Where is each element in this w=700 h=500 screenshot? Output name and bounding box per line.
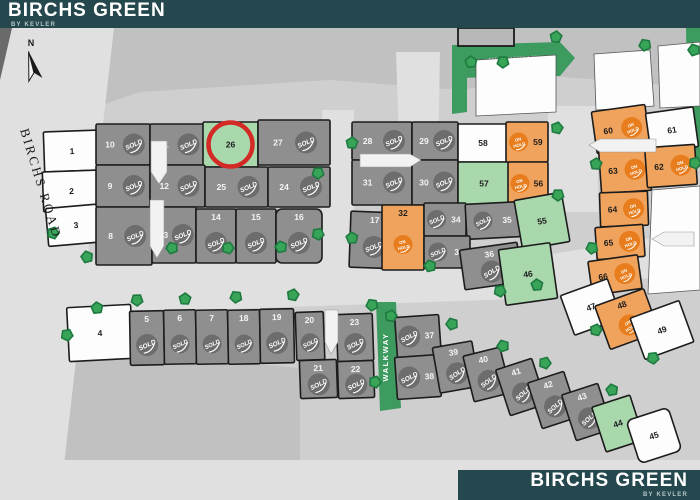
header-title: BIRCHS GREEN	[0, 1, 700, 22]
lot-8[interactable]: 8SOLD	[96, 207, 152, 265]
north-label: N	[28, 38, 35, 48]
lot-number-10: 10	[105, 140, 115, 150]
lot-6[interactable]: 6SOLD	[164, 310, 197, 365]
lot-29[interactable]: 29SOLD	[412, 122, 459, 160]
lot-number-4: 4	[97, 328, 103, 338]
lot-number-17: 17	[370, 215, 380, 225]
lot-number-56: 56	[534, 179, 544, 189]
lot-number-32: 32	[398, 208, 408, 218]
lot-25[interactable]: 25SOLD	[205, 167, 268, 207]
lot-number-57: 57	[479, 179, 489, 189]
lot-number-61: 61	[667, 124, 678, 135]
walkway-label: WALKWAY	[381, 333, 390, 382]
lot-number-65: 65	[603, 237, 613, 248]
footer-bar: BIRCHS GREEN BY KEVLER	[458, 470, 700, 500]
lot-number-20: 20	[305, 315, 315, 325]
lot-number-35: 35	[502, 215, 512, 225]
lot-number-63: 63	[608, 166, 618, 177]
lot-19[interactable]: 19SOLD	[260, 309, 295, 364]
lot-number-19: 19	[272, 312, 282, 322]
lot-57[interactable]: 57	[458, 162, 510, 205]
parcel	[594, 50, 654, 110]
lot-23[interactable]: 23SOLD	[336, 313, 374, 361]
site-map-page: WALKWAYWALKWAY123410SOLD11SOLD2627SOLD9S…	[0, 0, 700, 500]
lot-number-7: 7	[209, 313, 214, 323]
lot-number-36: 36	[484, 248, 495, 259]
lot-number-55: 55	[536, 215, 547, 227]
lot-number-39: 39	[448, 346, 459, 358]
lot-number-59: 59	[533, 137, 543, 147]
site-map-canvas: WALKWAYWALKWAY123410SOLD11SOLD2627SOLD9S…	[0, 0, 700, 500]
road-arrow	[360, 154, 421, 167]
road-arrow	[589, 139, 656, 152]
lot-number-64: 64	[608, 204, 618, 214]
lot-number-22: 22	[351, 364, 361, 374]
lot-1[interactable]: 1	[43, 130, 100, 172]
lot-26[interactable]: 26	[203, 122, 258, 167]
lot-number-37: 37	[424, 330, 434, 341]
lot-30[interactable]: 30SOLD	[412, 160, 459, 205]
lot-number-26: 26	[226, 140, 236, 150]
lot-number-2: 2	[69, 186, 74, 196]
footer-title: BIRCHS GREEN	[458, 471, 688, 492]
lot-number-30: 30	[419, 178, 429, 188]
lot-number-6: 6	[177, 313, 182, 323]
lot-59[interactable]: 59ONHOLD	[506, 122, 548, 162]
lot-34[interactable]: 34SOLD	[424, 203, 466, 236]
lot-number-27: 27	[273, 138, 283, 148]
lot-64[interactable]: 64ONHOLD	[599, 191, 648, 227]
lot-27[interactable]: 27SOLD	[258, 120, 330, 165]
header-subtitle: BY KEVLER	[0, 22, 700, 28]
lot-number-5: 5	[144, 314, 149, 324]
lot-shape-27	[258, 120, 330, 165]
lot-number-25: 25	[217, 182, 227, 192]
lot-number-12: 12	[160, 181, 170, 191]
walkway	[452, 45, 467, 114]
lot-number-58: 58	[478, 138, 488, 148]
lot-number-60: 60	[603, 125, 614, 136]
lot-number-18: 18	[239, 313, 249, 323]
header-bar: BIRCHS GREEN BY KEVLER	[0, 0, 700, 28]
lot-63[interactable]: 63ONHOLD	[599, 146, 652, 193]
lot-shape-35	[465, 202, 521, 240]
lot-number-31: 31	[363, 178, 373, 188]
lot-number-46: 46	[523, 268, 534, 279]
lot-number-15: 15	[251, 212, 261, 222]
lot-15[interactable]: 15SOLD	[236, 209, 276, 263]
lot-number-21: 21	[313, 363, 323, 373]
tree-icon	[690, 157, 700, 168]
lot-58[interactable]: 58	[458, 124, 508, 162]
lot-number-34: 34	[451, 215, 461, 225]
lot-21[interactable]: 21SOLD	[299, 359, 337, 399]
parcel	[476, 55, 556, 116]
lot-55[interactable]: 55	[514, 192, 570, 250]
lot-number-38: 38	[424, 371, 434, 382]
lot-number-28: 28	[363, 136, 373, 146]
lot-10[interactable]: 10SOLD	[96, 124, 150, 165]
site-map: WALKWAYWALKWAY123410SOLD11SOLD2627SOLD9S…	[0, 0, 700, 500]
footer-subtitle: BY KEVLER	[458, 492, 688, 498]
lot-number-14: 14	[211, 212, 221, 222]
lot-18[interactable]: 18SOLD	[228, 310, 261, 365]
lot-22[interactable]: 22SOLD	[337, 360, 374, 399]
lot-46[interactable]: 46	[498, 243, 557, 306]
lot-number-23: 23	[350, 317, 360, 327]
road-arrow	[150, 200, 164, 258]
lot-number-16: 16	[294, 212, 304, 222]
lot-number-9: 9	[108, 181, 113, 191]
lot-7[interactable]: 7SOLD	[196, 310, 229, 365]
lot-number-29: 29	[419, 136, 429, 146]
building-footprint	[458, 28, 514, 46]
lot-number-62: 62	[654, 162, 664, 173]
lot-20[interactable]: 20SOLD	[295, 312, 325, 361]
lot-32[interactable]: 32ONHOLD	[382, 205, 424, 270]
lot-35[interactable]: 35SOLD	[465, 202, 521, 240]
lot-number-24: 24	[279, 182, 289, 192]
lot-5[interactable]: 5SOLD	[130, 311, 165, 366]
lot-9[interactable]: 9SOLD	[96, 165, 150, 207]
lot-65[interactable]: 65ONHOLD	[595, 224, 645, 259]
lot-number-1: 1	[69, 146, 74, 156]
lot-number-8: 8	[108, 231, 113, 241]
lot-14[interactable]: 14SOLD	[196, 209, 236, 263]
